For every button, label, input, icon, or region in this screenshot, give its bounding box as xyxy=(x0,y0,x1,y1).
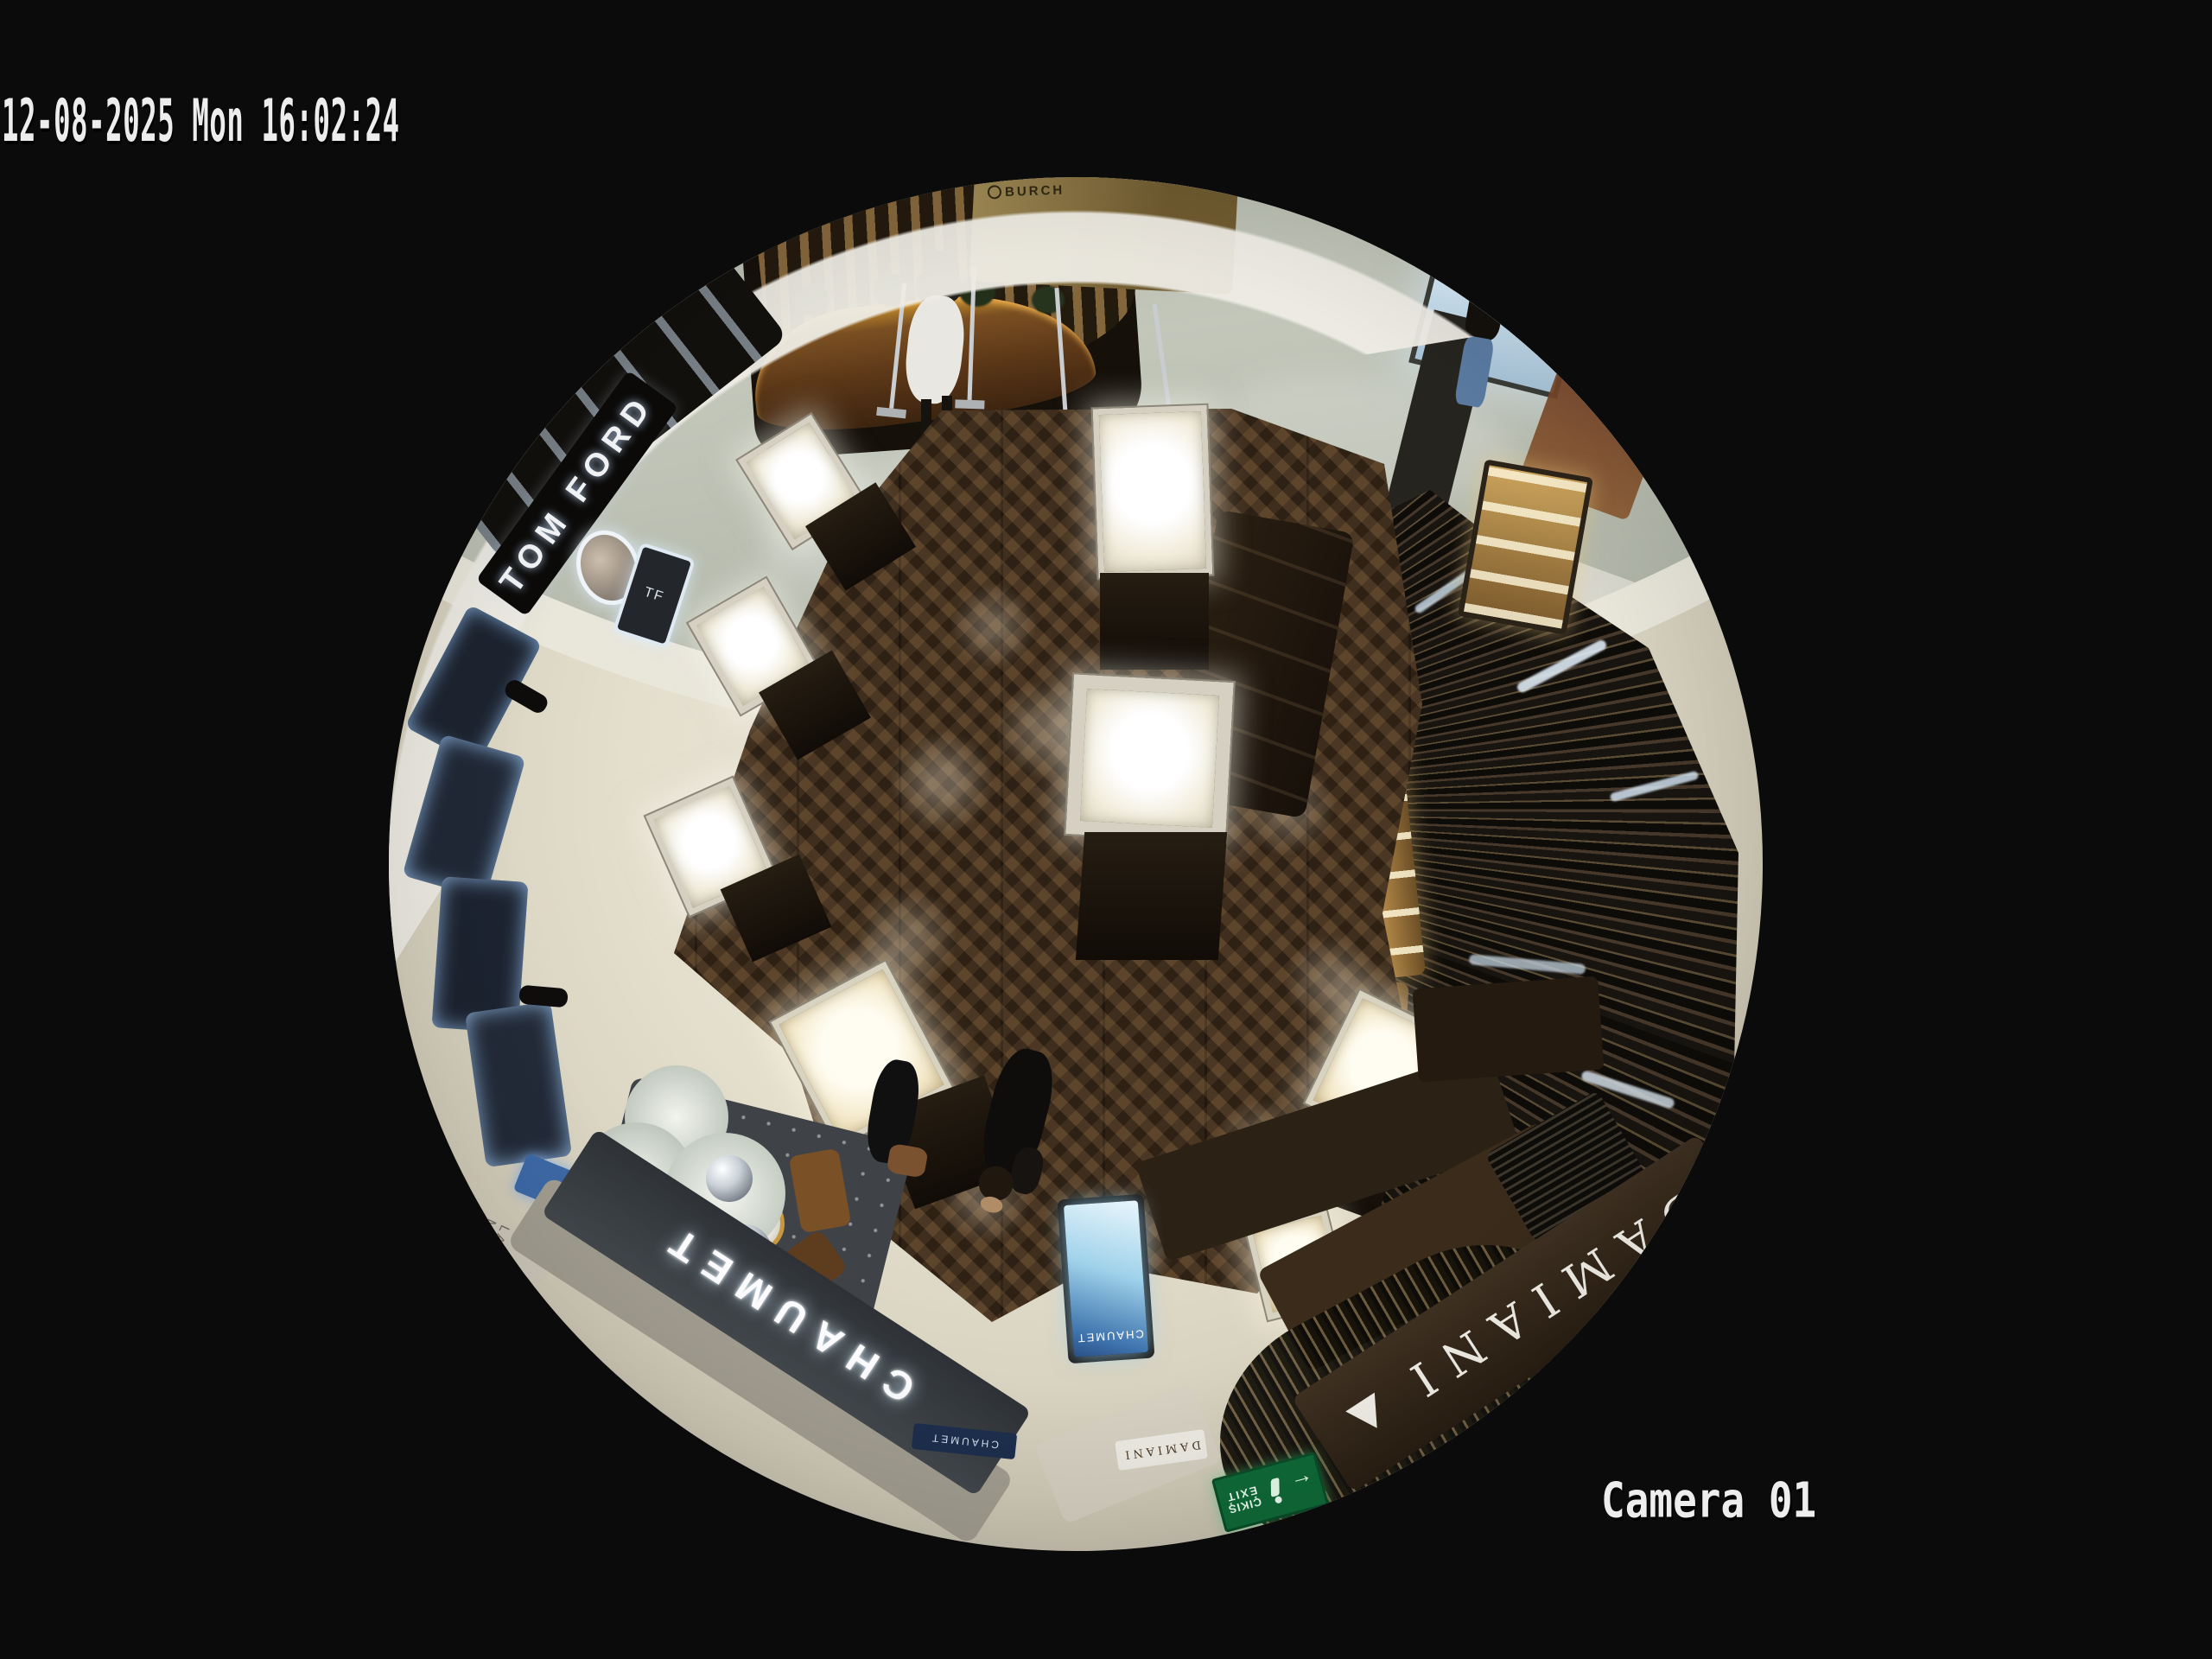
display-case-center xyxy=(1065,674,1233,842)
damiani-counter xyxy=(1412,976,1604,1083)
cctv-frame: 12-08-2025 Mon 16:02:24 Camera 01 BURCH xyxy=(0,0,2212,1659)
display-case-top-pedestal xyxy=(1100,573,1209,670)
display-case-top xyxy=(1093,405,1213,578)
window-display-blue xyxy=(526,1366,622,1457)
chaumet-screen-text: CHAUMET xyxy=(1076,1327,1144,1344)
timestamp-overlay: 12-08-2025 Mon 16:02:24 xyxy=(2,88,400,156)
mirror-ball-ornament xyxy=(706,1155,753,1202)
display-case-center-pedestal xyxy=(1076,832,1227,960)
camera-label: Camera 01 xyxy=(1601,1472,1816,1529)
shopping-bag xyxy=(886,1143,928,1179)
fisheye-view: BURCH xyxy=(389,177,1763,1551)
cosmetics-counter xyxy=(465,1001,572,1167)
exit-arrow-icon: ← xyxy=(1288,1467,1317,1499)
window-display-brown xyxy=(626,1430,715,1512)
damiani-logo-icon xyxy=(1345,1393,1391,1438)
chaumet-digital-screen: CHAUMET xyxy=(1057,1194,1154,1364)
exit-man-icon xyxy=(1268,1477,1284,1504)
